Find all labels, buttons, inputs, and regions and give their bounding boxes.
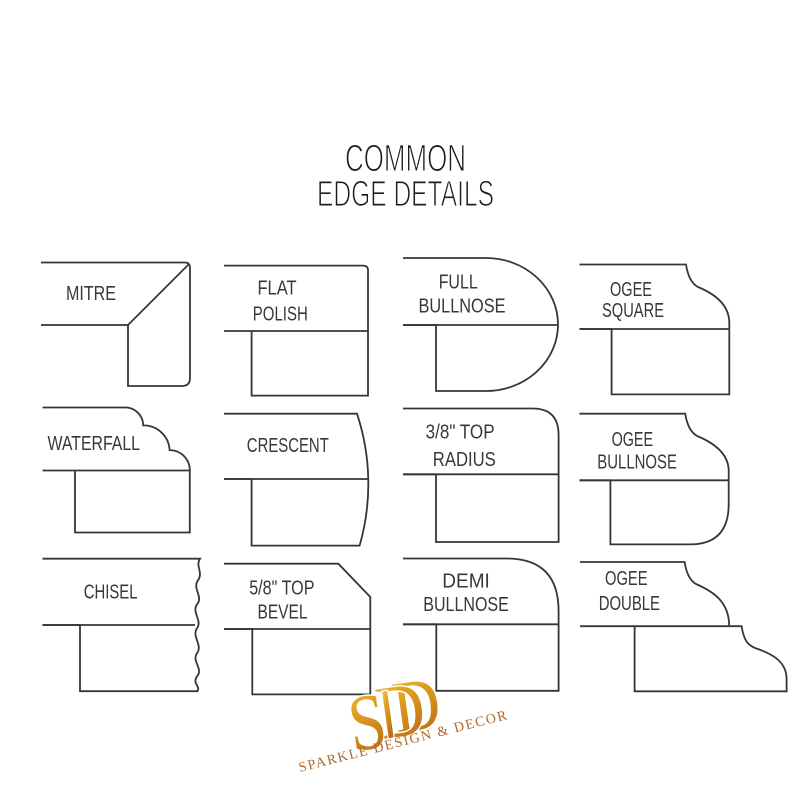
svg-text:BEVEL: BEVEL <box>258 601 308 623</box>
svg-text:FLAT: FLAT <box>258 278 297 300</box>
svg-text:3/8" TOP: 3/8" TOP <box>426 422 495 444</box>
svg-text:RADIUS: RADIUS <box>433 449 496 471</box>
svg-text:OGEE: OGEE <box>605 568 648 590</box>
svg-text:POLISH: POLISH <box>253 304 308 326</box>
svg-text:CHISEL: CHISEL <box>84 582 138 604</box>
svg-text:DOUBLE: DOUBLE <box>599 593 660 615</box>
svg-text:5/8" TOP: 5/8" TOP <box>249 578 314 600</box>
svg-text:WATERFALL: WATERFALL <box>48 433 141 455</box>
svg-text:EDGE DETAILS: EDGE DETAILS <box>317 173 494 214</box>
svg-text:OGEE: OGEE <box>610 279 652 301</box>
svg-text:MITRE: MITRE <box>66 283 116 305</box>
svg-text:CRESCENT: CRESCENT <box>247 435 329 457</box>
svg-text:OGEE: OGEE <box>612 429 654 451</box>
svg-text:FULL: FULL <box>439 272 478 294</box>
svg-text:BULLNOSE: BULLNOSE <box>597 451 677 473</box>
svg-text:DEMI: DEMI <box>442 571 490 593</box>
svg-text:BULLNOSE: BULLNOSE <box>419 295 506 317</box>
svg-text:SQUARE: SQUARE <box>602 300 664 322</box>
svg-text:BULLNOSE: BULLNOSE <box>423 594 509 616</box>
